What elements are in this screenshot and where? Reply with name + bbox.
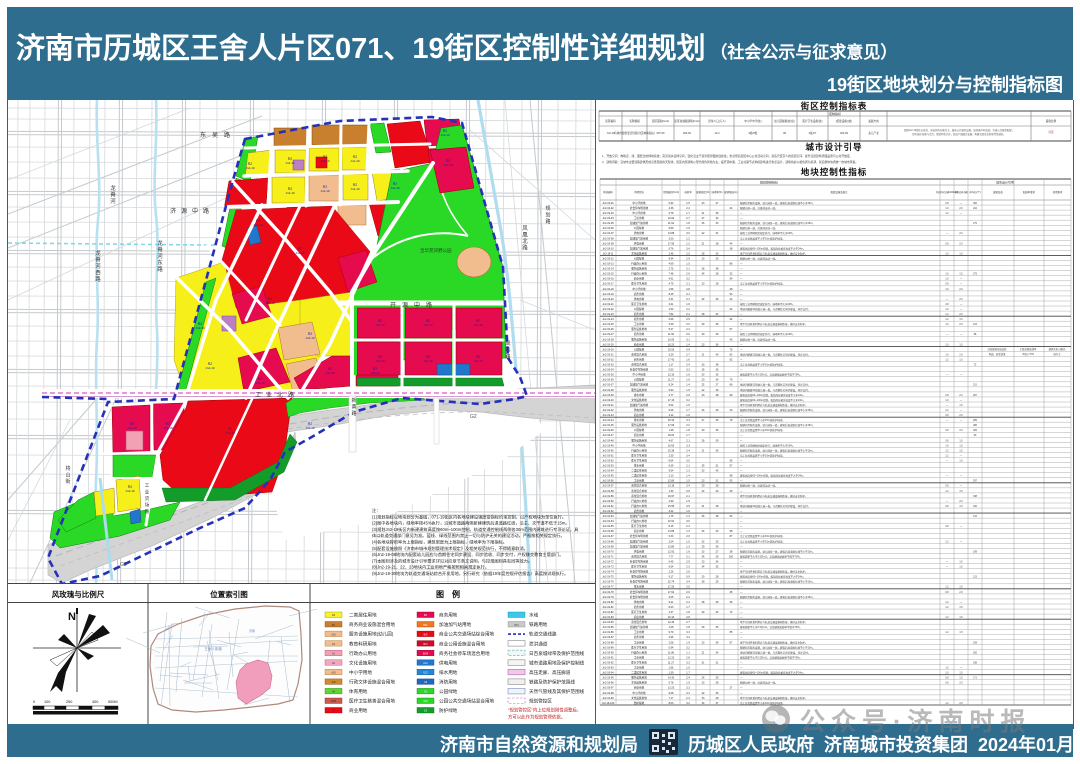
svg-text:15.74: 15.74 [668,581,675,584]
svg-text:1.5: 1.5 [686,404,690,407]
svg-text:服务设施用地: 服务设施用地 [631,423,647,427]
svg-text:3.5: 3.5 [686,505,690,508]
svg-text:3.1: 3.1 [686,338,690,341]
svg-text:城市设计引导: 城市设计引导 [996,180,1014,185]
svg-text:Jn2-19-31: Jn2-19-31 [602,353,614,356]
svg-text:教育科研用地: 教育科研用地 [349,640,377,647]
svg-text:2.4: 2.4 [686,697,690,700]
svg-text:行政文体设施混合用地: 行政文体设施混合用地 [349,678,395,685]
svg-text:详见: 详见 [1048,130,1054,134]
svg-text:加油加气站用地: 加油加气站用地 [630,383,649,387]
svg-text:1.26: 1.26 [669,571,674,574]
svg-text:9.21: 9.21 [669,601,674,604]
svg-text:Jn2-19-17: Jn2-19-17 [602,283,614,286]
svg-text:4.69: 4.69 [669,263,674,266]
svg-text:8.59: 8.59 [669,227,674,230]
svg-text:商住混合用地: 商住混合用地 [631,484,647,488]
svg-text:17.13: 17.13 [668,399,675,402]
svg-text:商业用地: 商业用地 [349,707,368,714]
svg-text:路: 路 [95,275,101,283]
svg-text:加油加气站用地: 加油加气站用地 [439,621,472,628]
svg-text:业: 业 [145,489,150,495]
svg-text:医疗卫生用地: 医疗卫生用地 [631,302,647,306]
svg-text:Jn2-19: Jn2-19 [473,359,483,363]
svg-text:Jn2-19: Jn2-19 [375,323,385,327]
svg-text:402.69: 402.69 [840,131,848,135]
svg-text:行政办公用地: 行政办公用地 [631,504,647,508]
svg-text:凤: 凤 [522,225,528,232]
svg-text:沿工业北路设置不小于15m宽防护绿带。: 沿工业北路设置不小于15m宽防护绿带。 [740,539,785,543]
svg-text:11.60: 11.60 [668,333,675,336]
svg-text:行政办公用地: 行政办公用地 [631,650,647,654]
svg-text:4.36: 4.36 [669,207,674,210]
svg-text:3.4: 3.4 [686,247,690,250]
svg-text:Jn2-19-23: Jn2-19-23 [602,313,614,316]
svg-text:Jn2-19-24: Jn2-19-24 [602,318,614,321]
svg-text:注：: 注： [372,507,380,514]
svg-text:Jn2-19-07: Jn2-19-07 [602,232,614,235]
svg-text:脊: 脊 [110,191,116,199]
svg-text:东: 东 [157,259,163,267]
svg-text:Jn2-19: Jn2-19 [350,159,360,163]
svg-text:医疗卫生慈善混合用地: 医疗卫生慈善混合用地 [349,698,395,705]
svg-text:建筑高度按60~100m控制，临街商业裙房高度不大于24m。: 建筑高度按60~100m控制，临街商业裙房高度不大于24m。 [740,474,805,478]
svg-text:Jn2-19-56: Jn2-19-56 [602,480,614,483]
svg-text:3.2: 3.2 [686,702,690,705]
svg-text:Jn2-19: Jn2-19 [325,371,335,375]
svg-text:8.64: 8.64 [669,459,674,462]
svg-text:3.3: 3.3 [686,661,690,664]
svg-text:(6)Jn2-19-08地块内配套幼儿园应与首期住宅同步建设: (6)Jn2-19-08地块内配套幼儿园应与首期住宅同步建设、同步验收、同步交付… [372,551,563,558]
svg-text:2.0: 2.0 [686,323,690,326]
svg-text:1.3: 1.3 [686,470,690,473]
svg-text:3.3: 3.3 [686,631,690,634]
svg-text:宝华苑郊野公园: 宝华苑郊野公园 [420,247,452,254]
svg-text:4.51: 4.51 [669,278,674,281]
svg-text:街区总规模建筑(hm2): 街区总规模建筑(hm2) [675,119,700,123]
svg-text:11.86: 11.86 [668,651,675,654]
svg-text:Jn2-19: Jn2-19 [320,189,330,193]
svg-text:Jn2-19: Jn2-19 [390,186,400,190]
svg-text:高压走廊、高压廊道: 高压走廊、高压廊道 [529,669,571,676]
svg-text:10.60: 10.60 [668,217,675,220]
svg-text:商业用地: 商业用地 [634,529,645,533]
svg-text:Jn2-19-86: Jn2-19-86 [602,631,614,634]
svg-text:Jn2-19: Jn2-19 [370,371,380,375]
svg-text:中小学用地: 中小学用地 [633,211,646,215]
svg-text:3.41: 3.41 [669,298,674,301]
svg-text:17.62: 17.62 [668,591,675,594]
svg-text:建筑密度(%): 建筑密度(%) [696,190,709,194]
svg-text:(5)配套设施按照《济南市城市规划管理技术规定》及相关规范执: (5)配套设施按照《济南市城市规划管理技术规定》及相关规范执行，不得随意取消。 [372,545,528,552]
svg-text:将: 将 [65,465,70,472]
svg-text:17.95: 17.95 [668,242,675,245]
svg-text:Jn2-19-46: Jn2-19-46 [602,429,614,432]
svg-text:配建社区服务设施、幼儿园各一处，建筑后退道路红线不小于15m: 配建社区服务设施、幼儿园各一处，建筑后退道路红线不小于15m。 [740,221,815,225]
svg-text:Jn2-19-16: Jn2-19-16 [602,278,614,281]
svg-text:Jn2-19-25: Jn2-19-25 [602,323,614,326]
svg-text:A33: A33 [331,633,336,636]
svg-text:龙: 龙 [95,249,101,257]
svg-text:Jn2-19-08: Jn2-19-08 [602,237,614,240]
svg-text:Jn2-19-60: Jn2-19-60 [602,500,614,503]
svg-text:水域: 水域 [529,612,539,618]
svg-text:配建社区服务设施、幼儿园各一处，建筑后退道路红线不小于15m: 配建社区服务设施、幼儿园各一处，建筑后退道路红线不小于15m。 [740,448,815,452]
svg-text:8.16: 8.16 [669,525,674,528]
svg-text:1.4: 1.4 [686,384,690,387]
svg-text:Jn2-19-100: Jn2-19-100 [602,702,615,705]
svg-text:Jn2-19-55: Jn2-19-55 [602,475,614,478]
svg-text:2.08: 2.08 [669,641,674,644]
svg-text:规划管控区: 规划管控区 [529,698,552,705]
svg-text:100: 100 [729,555,734,558]
svg-text:Jn2-19-96: Jn2-19-96 [602,682,614,685]
svg-text:3.3: 3.3 [686,692,690,695]
svg-text:服务设施用地: 服务设施用地 [631,575,647,579]
svg-text:城市道路用地及保护控制线: 城市道路用地及保护控制线 [529,659,585,666]
svg-text:沿工业北路设置不小于15m宽防护绿带。: 沿工业北路设置不小于15m宽防护绿带。 [740,236,785,240]
svg-text:H21: H21 [514,624,519,627]
svg-text:13.18: 13.18 [668,485,675,488]
svg-text:Jn2-19: Jn2-19 [443,163,453,167]
svg-text:按照工业用地相关规定执行，绿地率不大于20%。: 按照工业用地相关规定执行，绿地率不大于20%。 [740,332,795,336]
svg-text:3.00: 3.00 [669,237,674,240]
svg-text:6.54: 6.54 [669,566,674,569]
svg-text:其他要求: 其他要求 [1053,190,1063,194]
svg-text:商业公用设施混合用地: 商业公用设施混合用地 [439,640,485,647]
svg-text:(8)Jn2-19-21、22、23地块内工业用地严格按照相: (8)Jn2-19-21、22、23地块内工业用地严格按照相关规定执行。 [372,564,489,571]
svg-text:2.1: 2.1 [686,465,690,468]
svg-text:服务设施用地: 服务设施用地 [631,337,647,341]
svg-text:配建公厕一处、垃圾转运站一处。: 配建公厕一处、垃圾转运站一处。 [740,484,778,488]
svg-text:Jn2-19-90: Jn2-19-90 [602,651,614,654]
svg-text:龙: 龙 [110,184,116,192]
svg-text:龙: 龙 [157,239,163,247]
svg-text:加油加气站用地: 加油加气站用地 [630,221,649,225]
svg-text:Jn2-19-36: Jn2-19-36 [602,379,614,382]
svg-text:B/U: B/U [424,643,428,646]
svg-text:医疗卫生用地: 医疗卫生用地 [631,282,647,286]
svg-text:2.1: 2.1 [686,268,690,271]
svg-text:控制指标: 控制指标 [829,111,841,116]
svg-text:3.4: 3.4 [686,581,690,584]
svg-text:2.4: 2.4 [686,207,690,210]
svg-text:Jn2-19: Jn2-19 [320,159,330,163]
svg-text:2.6: 2.6 [686,273,690,276]
svg-text:1.2: 1.2 [686,237,690,240]
svg-text:划: 划 [545,212,550,219]
svg-text:3.0: 3.0 [686,459,690,462]
svg-text:工业用地: 工业用地 [634,216,645,220]
svg-text:7.84: 7.84 [669,313,674,316]
svg-text:13.80: 13.80 [668,545,675,548]
svg-text:建筑面积不大于2.5万m2，沿街建筑贴线率不低于70%。: 建筑面积不大于2.5万m2，沿街建筑贴线率不低于70%。 [740,373,802,377]
svg-text:规划控制指标: 规划控制指标 [760,180,778,185]
svg-text:Jn2-19-71: Jn2-19-71 [602,555,614,558]
svg-text:2.1: 2.1 [686,495,690,498]
svg-text:B/S4: B/S4 [423,652,429,655]
svg-text:地块内配建12班幼儿园一处，与首期住宅同步建设、同步交付。: 地块内配建12班幼儿园一处，与首期住宅同步建设、同步交付。 [740,504,810,508]
svg-text:建筑高度按60~100m控制，临街商业裙房高度不大于24m。: 建筑高度按60~100m控制，临街商业裙房高度不大于24m。 [740,671,805,675]
svg-text:街区编码: 街区编码 [605,119,616,123]
svg-text:Jn2-19: Jn2-19 [265,301,275,305]
svg-text:2.4: 2.4 [686,313,690,316]
svg-text:Jn2-19-97: Jn2-19-97 [602,687,614,690]
svg-text:2.8: 2.8 [686,656,690,659]
svg-text:3.3: 3.3 [686,444,690,447]
svg-text:沿工业北路设置不小于15m宽防护绿带。: 沿工业北路设置不小于15m宽防护绿带。 [740,453,785,457]
svg-text:12.92: 12.92 [668,550,675,553]
svg-text:配建公厕一处、垃圾转运站一处。: 配建公厕一处、垃圾转运站一处。 [740,206,778,210]
svg-text:社会停车场用地: 社会停车场用地 [630,570,649,574]
svg-text:1.5: 1.5 [686,389,690,392]
svg-text:Jn2-19-87: Jn2-19-87 [602,636,614,639]
svg-text:2.4: 2.4 [686,677,690,680]
svg-text:沿工业北路设置不小于15m宽防护绿带。: 沿工业北路设置不小于15m宽防护绿带。 [740,428,785,432]
svg-text:居住人口(万人): 居住人口(万人) [708,119,725,123]
svg-text:社会停车场用地: 社会停车场用地 [630,580,649,584]
svg-text:路: 路 [145,508,150,515]
svg-text:16.23: 16.23 [668,343,675,346]
svg-text:Jn2-19-81: Jn2-19-81 [602,606,614,609]
svg-text:天然气管线及其保护范围线: 天然气管线及其保护范围线 [529,688,585,695]
svg-text:4处/27: 4处/27 [809,131,817,135]
svg-text:商务用地: 商务用地 [634,509,645,513]
svg-text:1.9: 1.9 [686,510,690,513]
svg-text:商务用地: 商务用地 [439,612,458,619]
svg-text:Jn2-19-26: Jn2-19-26 [602,328,614,331]
svg-text:建筑高度按60~100m控制，临街商业裙房高度不大于24m。: 建筑高度按60~100m控制，临街商业裙房高度不大于24m。 [740,393,805,397]
svg-text:1.7: 1.7 [686,434,690,437]
svg-text:0: 0 [33,700,35,704]
svg-text:沿工业北路设置不小于15m宽防护绿带。: 沿工业北路设置不小于15m宽防护绿带。 [740,282,785,286]
svg-text:Jn2-19-99: Jn2-19-99 [602,697,614,700]
svg-text:U12: U12 [423,662,428,665]
svg-text:10.91: 10.91 [668,520,675,523]
svg-text:12.36: 12.36 [668,621,675,624]
svg-text:建筑面积不大于2.5万m2，沿街建筑贴线率不低于70%。: 建筑面积不大于2.5万m2，沿街建筑贴线率不低于70%。 [740,625,802,629]
svg-text:社会停车场用地: 社会停车场用地 [630,590,649,594]
svg-text:Jn2-19: Jn2-19 [295,251,305,255]
svg-text:商住混合用地: 商住混合用地 [631,363,647,367]
svg-text:2.4: 2.4 [686,328,690,331]
svg-text:Jn2-19: Jn2-19 [205,366,215,370]
svg-text:16.97: 16.97 [668,495,675,498]
svg-text:地下空间开发利用应与轨道交通设施相衔接，做好安全防护。: 地下空间开发利用应与轨道交通设施相衔接，做好安全防护。 [740,620,808,624]
svg-text:0.94: 0.94 [669,646,674,649]
svg-text:Jn2-19-11: Jn2-19-11 [602,252,614,255]
svg-text:工业用地: 工业用地 [634,479,645,483]
svg-text:凰: 凰 [522,232,528,239]
svg-text:地下空间开发利用应与轨道交通设施相衔接，做好安全防护。: 地下空间开发利用应与轨道交通设施相衔接，做好安全防护。 [740,570,808,574]
svg-text:二类居住用地: 二类居住用地 [631,671,647,675]
svg-text:Jn2-19-98: Jn2-19-98 [602,692,614,695]
svg-text:8.03: 8.03 [669,702,674,705]
svg-text:文化设施用地: 文化设施用地 [349,659,377,666]
svg-text:Jn2-19: Jn2-19 [305,336,315,340]
svg-text:用地面积(hm2): 用地面积(hm2) [663,190,679,194]
svg-text:250: 250 [66,700,72,704]
svg-text:Jn2-19-61: Jn2-19-61 [602,505,614,508]
svg-text:医疗卫生用地: 医疗卫生用地 [631,645,647,649]
svg-text:Jn2-19-13: Jn2-19-13 [602,263,614,266]
svg-text:用地性质: 用地性质 [634,190,644,194]
svg-text:配建社区服务设施、幼儿园各一处，建筑后退道路红线不小于15m: 配建社区服务设施、幼儿园各一处，建筑后退道路红线不小于15m。 [740,645,815,649]
svg-text:962.52: 962.52 [683,131,691,135]
svg-text:鸣: 鸣 [505,347,510,354]
svg-text:行政办公用地: 行政办公用地 [631,262,647,266]
svg-text:公园绿地: 公园绿地 [439,688,458,695]
svg-text:配建公厕一处、垃圾转运站一处。: 配建公厕一处、垃圾转运站一处。 [740,256,778,260]
svg-text:商住混合用地: 商住混合用地 [631,489,647,493]
svg-text:1.39: 1.39 [669,672,674,675]
svg-text:Jn2-19-42: Jn2-19-42 [602,409,614,412]
svg-text:Jn2-19-59: Jn2-19-59 [602,495,614,498]
svg-text:凤: 凤 [505,341,510,347]
svg-text:1.30: 1.30 [669,490,674,493]
svg-text:13.10: 13.10 [668,374,675,377]
svg-text:0.9: 0.9 [686,348,690,351]
svg-text:6.45: 6.45 [669,560,674,563]
svg-text:3.21: 3.21 [669,303,674,306]
svg-text:加油加气站用地: 加油加气站用地 [630,539,649,543]
svg-text:1.5: 1.5 [686,202,690,205]
svg-text:排水用地: 排水用地 [634,464,645,468]
svg-text:商业用地: 商业用地 [634,615,645,619]
svg-text:沿工业北路设置不小于15m宽防护绿带。: 沿工业北路设置不小于15m宽防护绿带。 [740,363,785,367]
svg-text:Jn2-19-54: Jn2-19-54 [602,470,614,473]
svg-text:Jn2-19-05: Jn2-19-05 [602,222,614,225]
svg-text:0.53: 0.53 [669,369,674,372]
svg-text:G2: G2 [470,414,477,420]
svg-text:场: 场 [145,502,150,509]
svg-text:多元产业: 多元产业 [868,131,879,135]
svg-text:地下空间开发利用应与轨道交通设施相衔接，做好安全防护。: 地下空间开发利用应与轨道交通设施相衔接，做好安全防护。 [740,640,808,644]
svg-text:Jn2-19-21: Jn2-19-21 [602,303,614,306]
svg-text:3.29: 3.29 [669,353,674,356]
svg-text:500M: 500M [108,700,118,704]
svg-text:Jn2-19-48: Jn2-19-48 [602,439,614,442]
svg-text:2.4: 2.4 [686,525,690,528]
svg-text:地下空间开发利用应与轨道交通设施相衔接，做好安全防护。: 地下空间开发利用应与轨道交通设施相衔接，做好安全防护。 [740,494,808,498]
svg-text:建筑面积不大于2.5万m2，沿街建筑贴线率不低于70%。: 建筑面积不大于2.5万m2，沿街建筑贴线率不低于70%。 [740,554,802,558]
svg-text:Jn2-19-12: Jn2-19-12 [602,257,614,260]
svg-text:1.6: 1.6 [686,550,690,553]
svg-text:8.24: 8.24 [669,384,674,387]
svg-text:2.7: 2.7 [686,353,690,356]
svg-text:Jn2-19-50: Jn2-19-50 [602,449,614,452]
svg-text:供电用地: 供电用地 [634,297,645,301]
svg-text:1、开放空间：构筑点、线、面结合的绿地系统，完善滨水蓝绿空间: 1、开放空间：构筑点、线、面结合的绿地系统，完善滨水蓝绿空间，强化沿主干道景观界… [602,154,852,158]
svg-text:商务用地: 商务用地 [634,312,645,316]
svg-text:界面，高低错落: 界面，高低错落 [989,352,1006,356]
svg-text:防护绿地: 防护绿地 [439,707,458,714]
svg-text:规划Jn2-19街区以居住、商业商务功能为主，兼容公共服务设: 规划Jn2-19街区以居住、商业商务功能为主，兼容公共服务设施。加快城中村改造，… [904,128,1014,132]
svg-text:Jn2-19: Jn2-19 [440,133,450,137]
svg-text:二类居住用地: 二类居住用地 [349,612,377,619]
svg-text:建筑高度按60~100m控制，临街商业裙房高度不大于24m。: 建筑高度按60~100m控制，临街商业裙房高度不大于24m。 [740,575,805,579]
svg-text:0.9: 0.9 [686,576,690,579]
svg-text:中小学中学(处): 中小学中学(处) [744,119,761,123]
svg-text:1.6: 1.6 [686,379,690,382]
svg-text:行政办公用地: 行政办公用地 [631,272,647,276]
svg-text:Jn2-19: Jn2-19 [245,166,255,170]
svg-text:图 例: 图 例 [436,589,460,599]
svg-text:中小学用地: 中小学用地 [349,669,372,676]
svg-text:2.6: 2.6 [686,394,690,397]
svg-text:4.77: 4.77 [669,394,674,397]
svg-text:路: 路 [545,218,550,225]
svg-text:A5/B: A5/B [331,700,337,703]
svg-text:Jn2-19: Jn2-19 [195,326,205,330]
svg-text:河: 河 [110,197,116,205]
svg-text:0.9: 0.9 [686,490,690,493]
svg-text:地下空间开发利用应与轨道交通设施相衔接，做好安全防护。: 地下空间开发利用应与轨道交通设施相衔接，做好安全防护。 [740,696,808,700]
svg-text:3.0: 3.0 [686,520,690,523]
svg-text:15.92: 15.92 [668,348,675,351]
svg-text:11.27: 11.27 [668,661,675,664]
svg-text:排水用地: 排水用地 [634,393,645,397]
svg-text:沿工业北路设置不小于15m宽防护绿带。: 沿工业北路设置不小于15m宽防护绿带。 [740,418,785,422]
svg-text:商住混合用地: 商住混合用地 [631,352,647,356]
svg-text:商业用地: 商业用地 [634,433,645,437]
svg-text:排水用地: 排水用地 [439,669,458,676]
svg-text:配建社区服务设施、幼儿园各一处，建筑后退道路红线不小于15m: 配建社区服务设施、幼儿园各一处，建筑后退道路红线不小于15m。 [740,580,815,584]
svg-text:2、建筑风貌：沿城市主要道路建筑形成高低错落的天际线，街区内: 2、建筑风貌：沿城市主要道路建筑形成高低错落的天际线，街区内部建筑以现代简约风格… [602,160,858,164]
svg-text:Jn2-19-82: Jn2-19-82 [602,611,614,614]
svg-text:社会停车场用地: 社会停车场用地 [630,534,649,538]
svg-text:Jn2-19-15: Jn2-19-15 [602,273,614,276]
svg-text:河: 河 [157,252,163,260]
svg-text:Jn2-19-18: Jn2-19-18 [602,288,614,291]
svg-text:14.30: 14.30 [668,677,675,680]
svg-text:1.7: 1.7 [686,606,690,609]
svg-text:13.85: 13.85 [668,530,675,533]
svg-text:2.5: 2.5 [686,586,690,589]
svg-text:地下空间开发利用应与轨道交通设施相衔接，做好安全防护。: 地下空间开发利用应与轨道交通设施相衔接，做好安全防护。 [740,251,808,255]
svg-text:建筑色彩以暖色: 建筑色彩以暖色 [1049,347,1066,351]
svg-text:消防用地: 消防用地 [439,678,458,685]
svg-text:3.24: 3.24 [669,510,674,513]
svg-text:Jn2-19-75: Jn2-19-75 [602,576,614,579]
svg-text:2.1: 2.1 [686,555,690,558]
svg-text:东吴路: 东吴路 [200,131,236,139]
svg-text:“规划管控区”内上位规划刚性调整后，: “规划管控区”内上位规划刚性调整后， [508,707,581,714]
svg-text:加油加气站用地: 加油加气站用地 [630,544,649,548]
svg-text:Jn2-19-78: Jn2-19-78 [602,591,614,594]
svg-text:0.66: 0.66 [669,318,674,321]
svg-text:Jn2-19-83: Jn2-19-83 [602,616,614,619]
svg-text:建筑形态: 建筑形态 [993,190,1003,194]
svg-text:1.56: 1.56 [669,288,674,291]
svg-text:Jn2-19: Jn2-19 [285,161,295,165]
svg-text:医疗卫生用地: 医疗卫生用地 [631,565,647,569]
svg-text:商业用地: 商业用地 [634,413,645,417]
svg-text:0.93: 0.93 [669,389,674,392]
svg-text:风玫瑰与比例尺: 风玫瑰与比例尺 [52,589,105,599]
svg-text:服务设施用地: 服务设施用地 [631,676,647,680]
svg-text:1.8: 1.8 [686,611,690,614]
svg-text:地块控制性指标: 地块控制性指标 [801,167,868,177]
svg-text:服务设施用地: 服务设施用地 [631,327,647,331]
svg-text:2.9: 2.9 [686,560,690,563]
svg-text:Jn2-19-35: Jn2-19-35 [602,374,614,377]
svg-text:商住混合用地: 商住混合用地 [631,620,647,624]
svg-text:脊: 脊 [157,246,163,254]
svg-text:Jn2-19: Jn2-19 [350,187,360,191]
svg-text:1.5: 1.5 [686,540,690,543]
svg-text:加油加气站用地: 加油加气站用地 [630,625,649,629]
